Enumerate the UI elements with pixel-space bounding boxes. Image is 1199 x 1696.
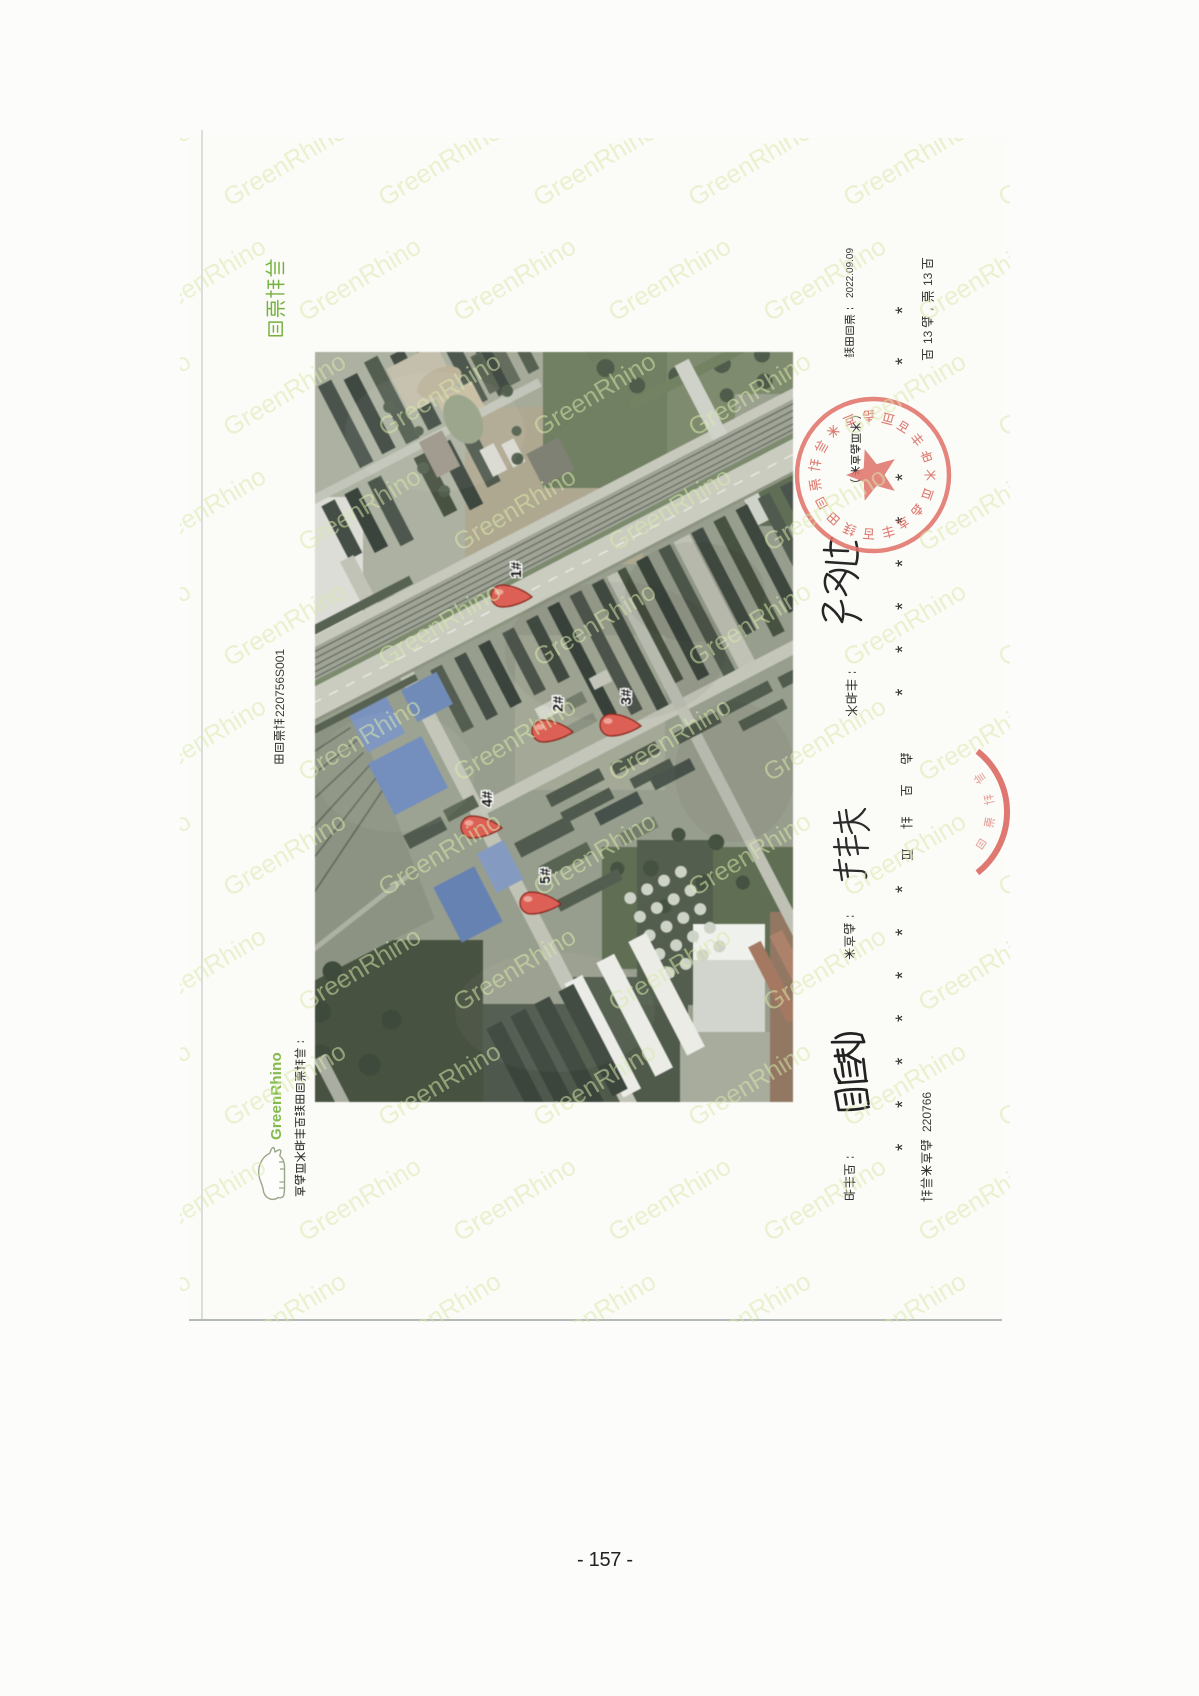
svg-text:3#: 3# — [619, 689, 635, 705]
svg-text:1#: 1# — [509, 562, 525, 578]
svg-text:4#: 4# — [480, 791, 496, 807]
svg-text:5#: 5# — [538, 868, 554, 884]
svg-text:2#: 2# — [551, 696, 567, 712]
